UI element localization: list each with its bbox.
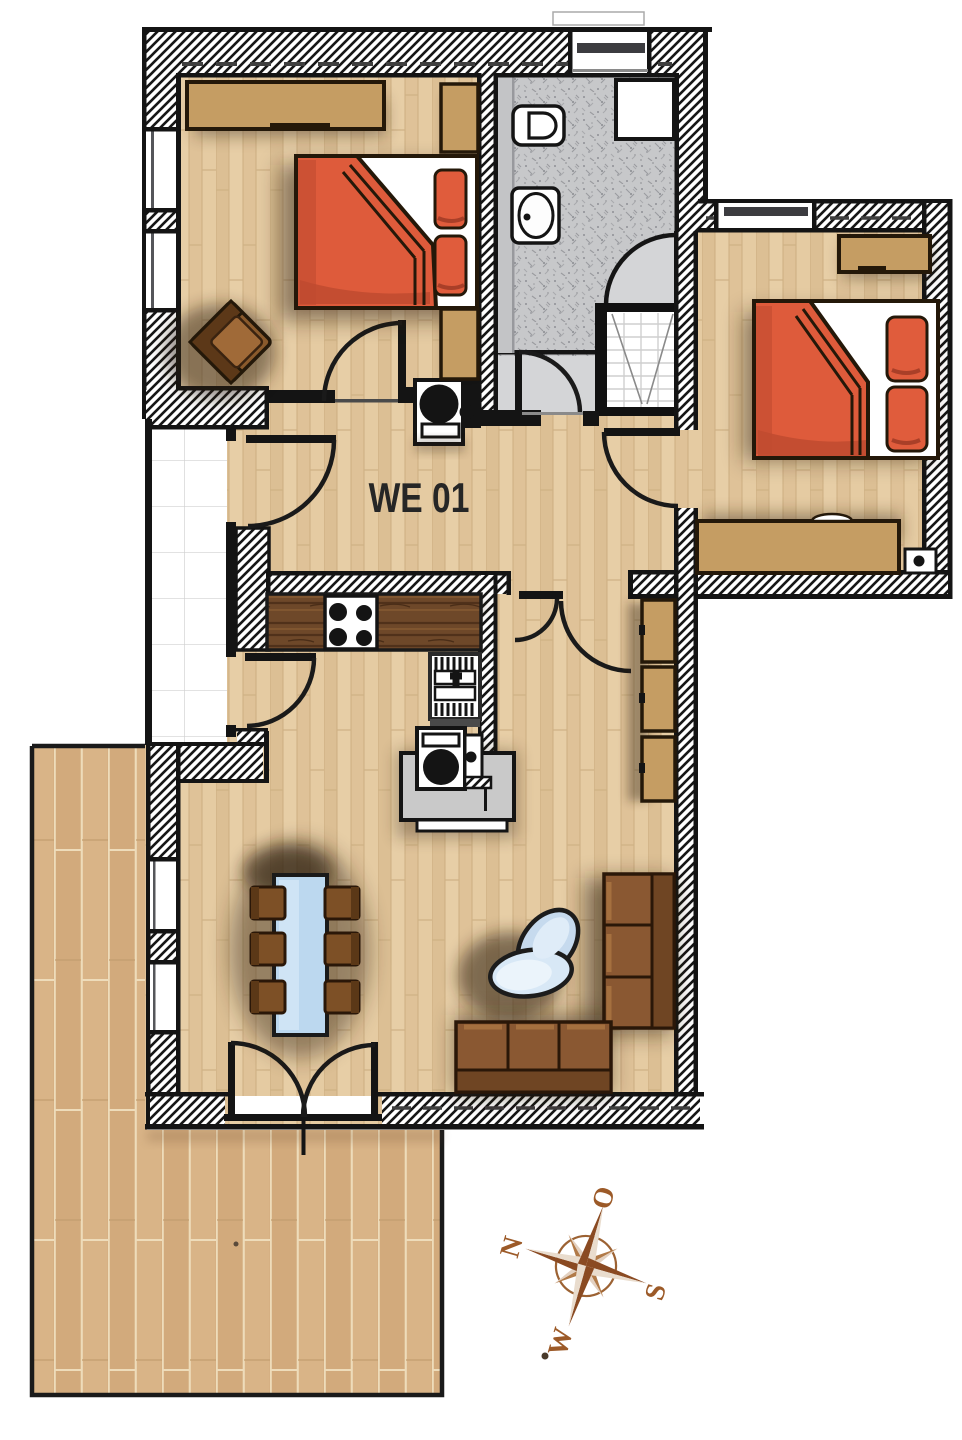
svg-text:WE 01: WE 01 [369,476,470,522]
